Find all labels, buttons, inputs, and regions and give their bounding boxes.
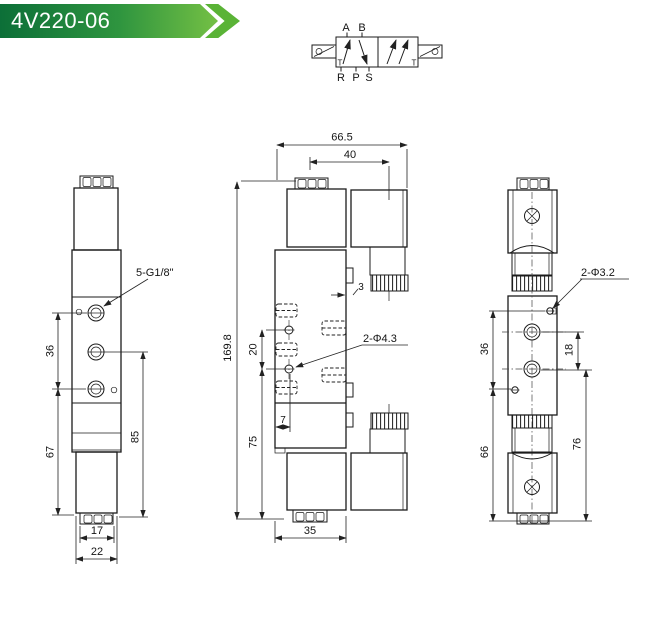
dim-85-left: 85 — [130, 431, 142, 443]
left-view-ports — [76, 305, 117, 397]
left-view: 36 67 85 17 22 5-G1/8" — [45, 176, 174, 564]
thread-size-label: 5-G1/8" — [136, 267, 174, 279]
valve-symbol: A B R P S T T — [312, 22, 442, 84]
dim-169-8: 169.8 — [222, 334, 234, 362]
technical-drawing: A B R P S T T — [0, 0, 668, 620]
symbol-t-left-label: T — [338, 59, 343, 68]
dim-7: 7 — [280, 415, 286, 426]
dim-36-right: 36 — [479, 343, 491, 355]
front-view: 169.8 66.5 40 20 75 3 2-Φ4 — [222, 132, 408, 544]
right-view-dimensions: 36 66 18 76 2-Φ3.2 — [479, 267, 629, 521]
flow-arrows — [343, 40, 408, 64]
dim-36-left: 36 — [45, 345, 57, 357]
dim-67-left: 67 — [45, 446, 57, 458]
dim-40: 40 — [344, 149, 356, 161]
symbol-port-r-label: R — [337, 72, 345, 84]
symbol-port-s-label: S — [365, 72, 372, 84]
dim-66-right: 66 — [479, 446, 491, 458]
solenoid-right-icon — [418, 45, 442, 58]
front-view-dimensions: 169.8 66.5 40 20 75 3 2-Φ4 — [222, 132, 408, 544]
solenoid-left-icon — [312, 45, 336, 58]
right-holes-label: 2-Φ3.2 — [581, 267, 615, 279]
symbol-t-right-label: T — [412, 59, 417, 68]
symbol-port-b-label: B — [358, 22, 365, 34]
dim-20: 20 — [248, 343, 260, 355]
right-view: 36 66 18 76 2-Φ3.2 — [479, 178, 629, 524]
dim-66-5: 66.5 — [331, 132, 352, 144]
dim-17-left: 17 — [91, 525, 103, 537]
side-holes — [511, 308, 557, 393]
dim-3: 3 — [358, 282, 364, 293]
page-root: 4V220-06 — [0, 0, 668, 620]
dim-35: 35 — [304, 525, 316, 537]
dim-18-right: 18 — [564, 344, 576, 356]
symbol-port-p-label: P — [352, 72, 359, 84]
dim-75: 75 — [248, 436, 260, 448]
front-holes-label: 2-Φ4.3 — [363, 333, 397, 345]
hidden-port-lines — [276, 304, 346, 394]
dim-22-left: 22 — [91, 546, 103, 558]
left-view-dimensions: 36 67 85 17 22 5-G1/8" — [45, 267, 174, 564]
right-view-body — [502, 178, 566, 524]
left-view-body — [72, 176, 121, 524]
front-view-body — [275, 178, 408, 522]
symbol-port-a-label: A — [342, 22, 350, 34]
dim-76-right: 76 — [572, 438, 584, 450]
